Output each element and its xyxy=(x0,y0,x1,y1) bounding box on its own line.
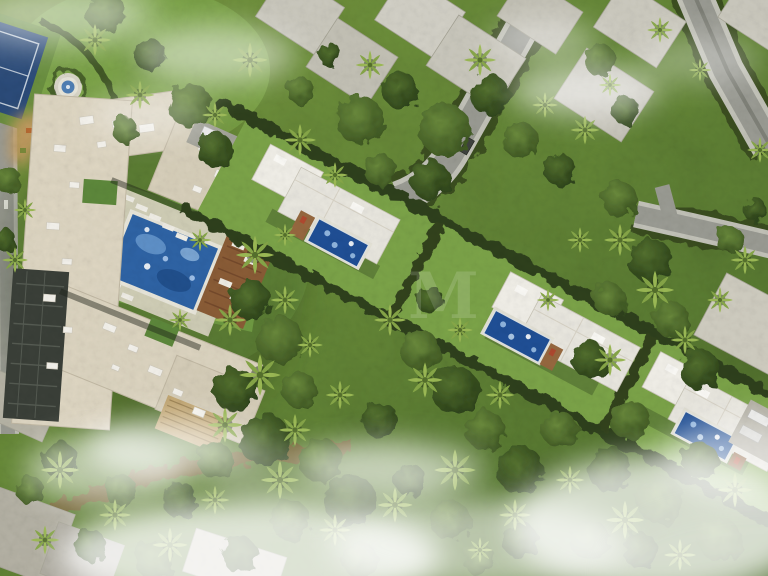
aerial-render-canvas: M xyxy=(0,0,768,576)
watermark: M xyxy=(408,259,479,334)
fog-patch xyxy=(90,93,210,137)
fog-patch xyxy=(135,25,295,85)
fog-patch xyxy=(510,64,660,116)
fog-patch xyxy=(490,20,600,60)
fog-patch xyxy=(640,35,760,85)
fog-patch xyxy=(210,445,450,515)
aerial-site-plan: M xyxy=(0,0,768,576)
